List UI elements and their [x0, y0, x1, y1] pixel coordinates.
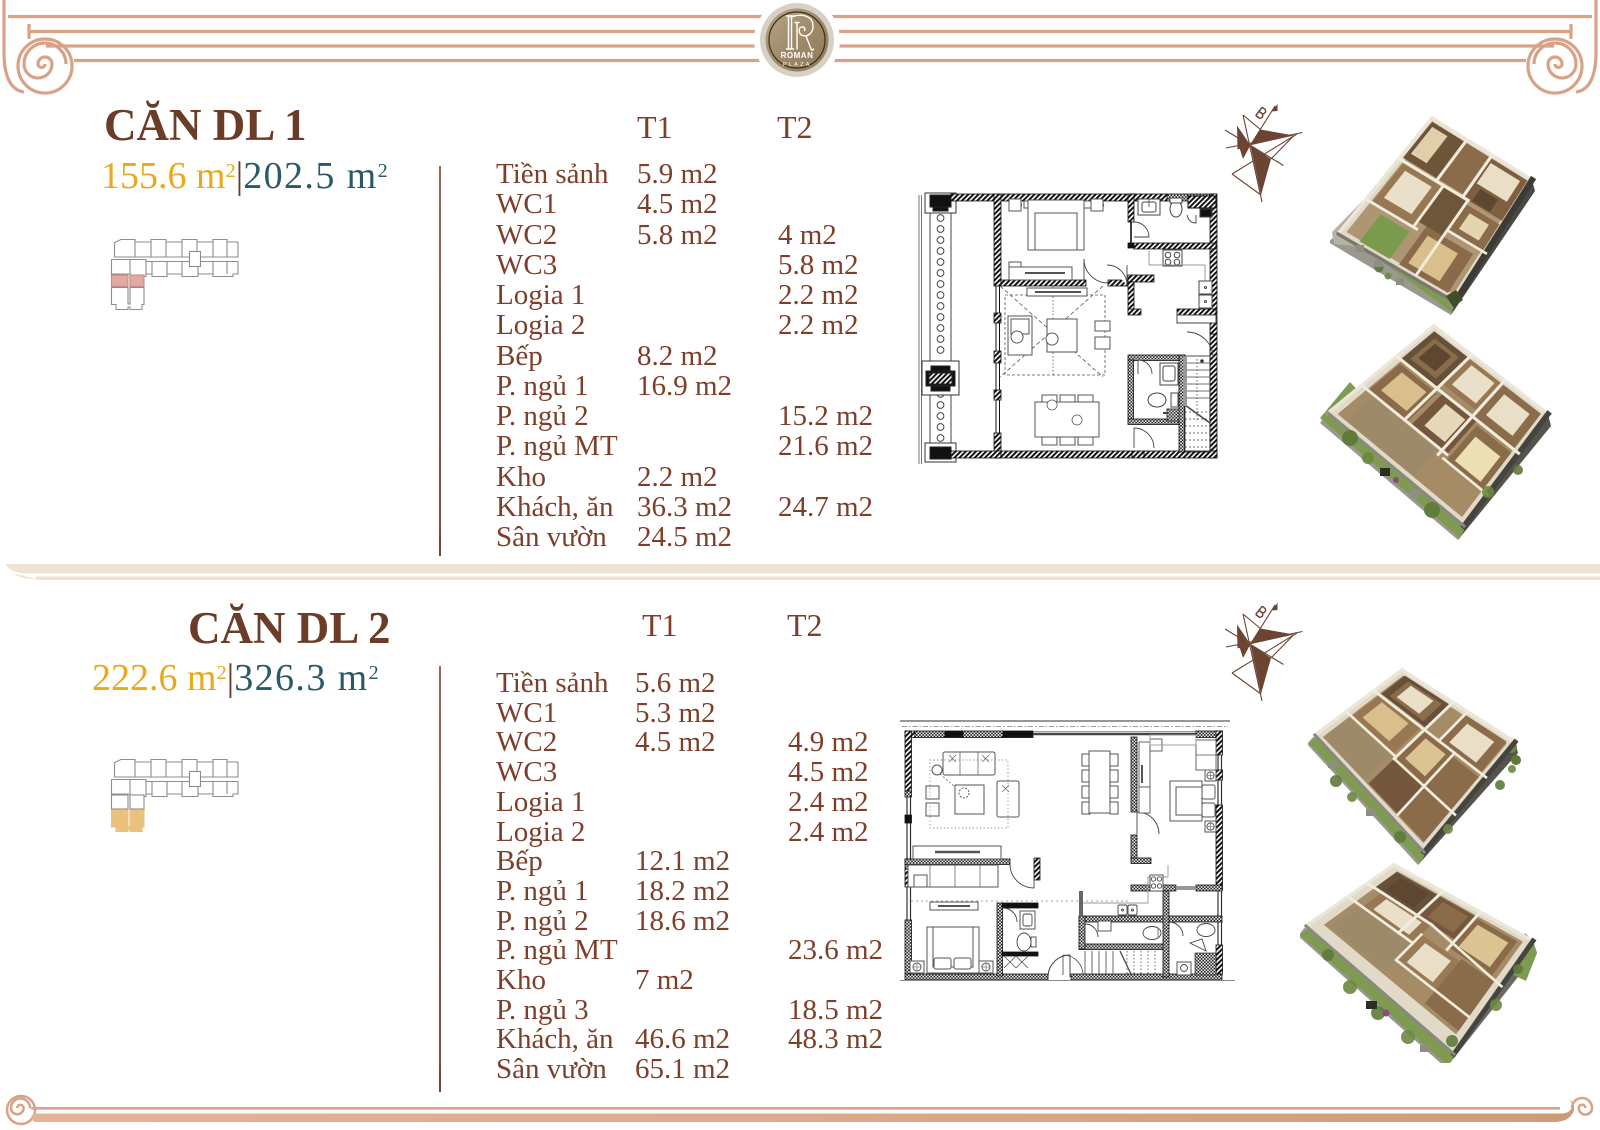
- svg-text:ROMAN: ROMAN: [781, 51, 814, 60]
- svg-text:PLAZA: PLAZA: [783, 62, 812, 68]
